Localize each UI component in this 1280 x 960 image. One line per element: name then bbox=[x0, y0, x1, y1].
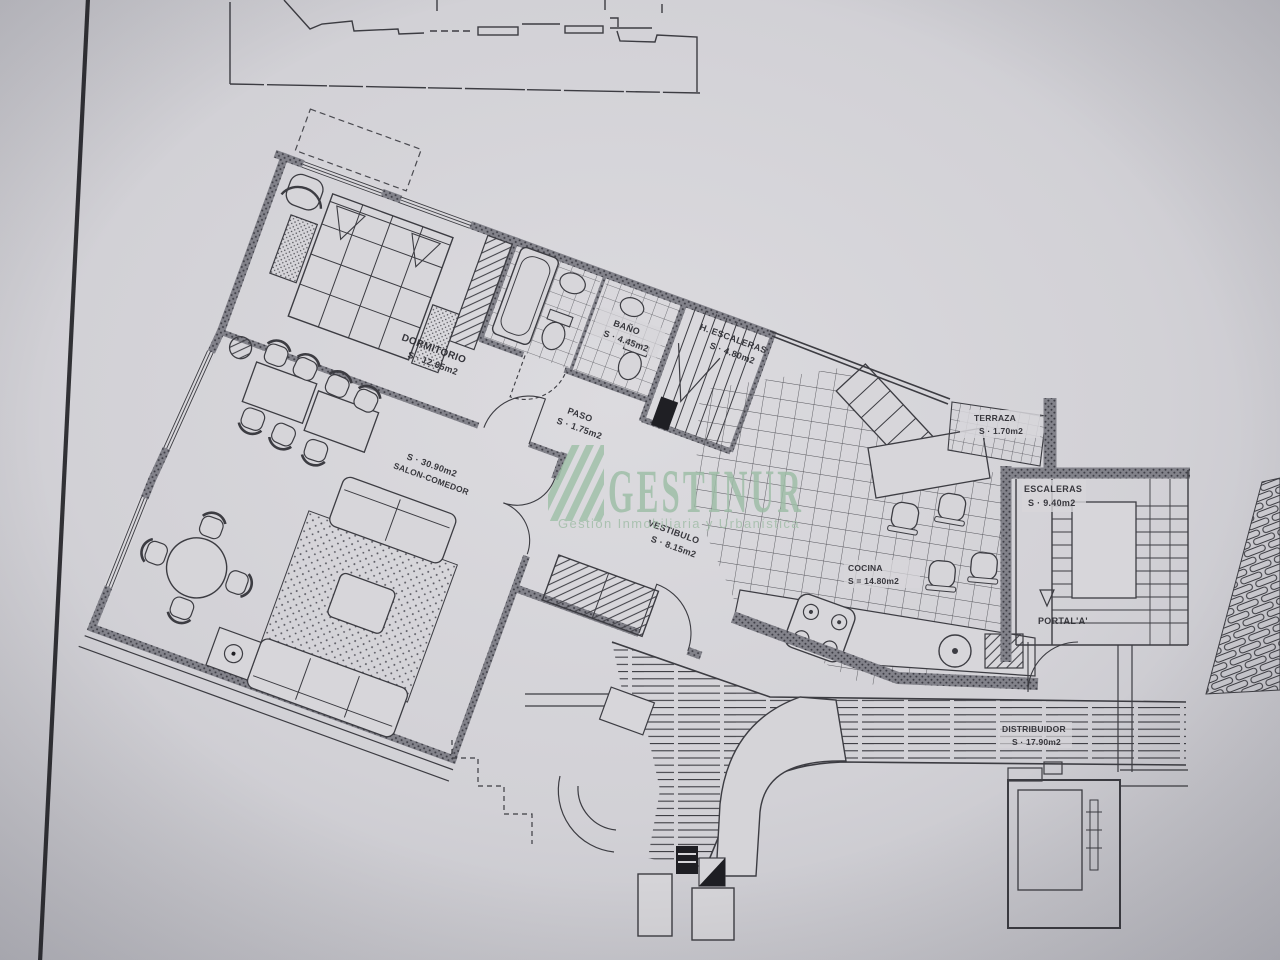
label-terraza-area: S · 1.70m2 bbox=[979, 426, 1023, 436]
label-terraza-name: TERRAZA bbox=[974, 413, 1016, 423]
floor-plan-drawing: DORMITORIO S · 12.85m2 BAÑO S · 4.45m2 H… bbox=[0, 0, 1280, 960]
watermark-tagline-text: Gestión Inmobiliaria y Urbanística bbox=[558, 516, 800, 531]
stair-glyph bbox=[676, 846, 698, 874]
cocina-label-group: COCINA S = 14.80m2 bbox=[844, 560, 920, 588]
stair-landing bbox=[1072, 502, 1136, 598]
label-escaleras-area: S · 9.40m2 bbox=[1028, 498, 1076, 508]
scanned-floor-plan-photo: DORMITORIO S · 12.85m2 BAÑO S · 4.45m2 H… bbox=[0, 0, 1280, 960]
label-distribuidor-area: S · 17.90m2 bbox=[1012, 737, 1061, 747]
label-portal-name: PORTAL'A' bbox=[1038, 616, 1088, 626]
stool-icon bbox=[968, 552, 1001, 585]
label-escaleras-name: ESCALERAS bbox=[1024, 484, 1082, 494]
label-distribuidor-name: DISTRIBUIDOR bbox=[1002, 724, 1066, 734]
stool-icon bbox=[926, 560, 959, 593]
label-cocina-area: S = 14.80m2 bbox=[848, 576, 899, 586]
label-cocina-name: COCINA bbox=[848, 563, 883, 573]
